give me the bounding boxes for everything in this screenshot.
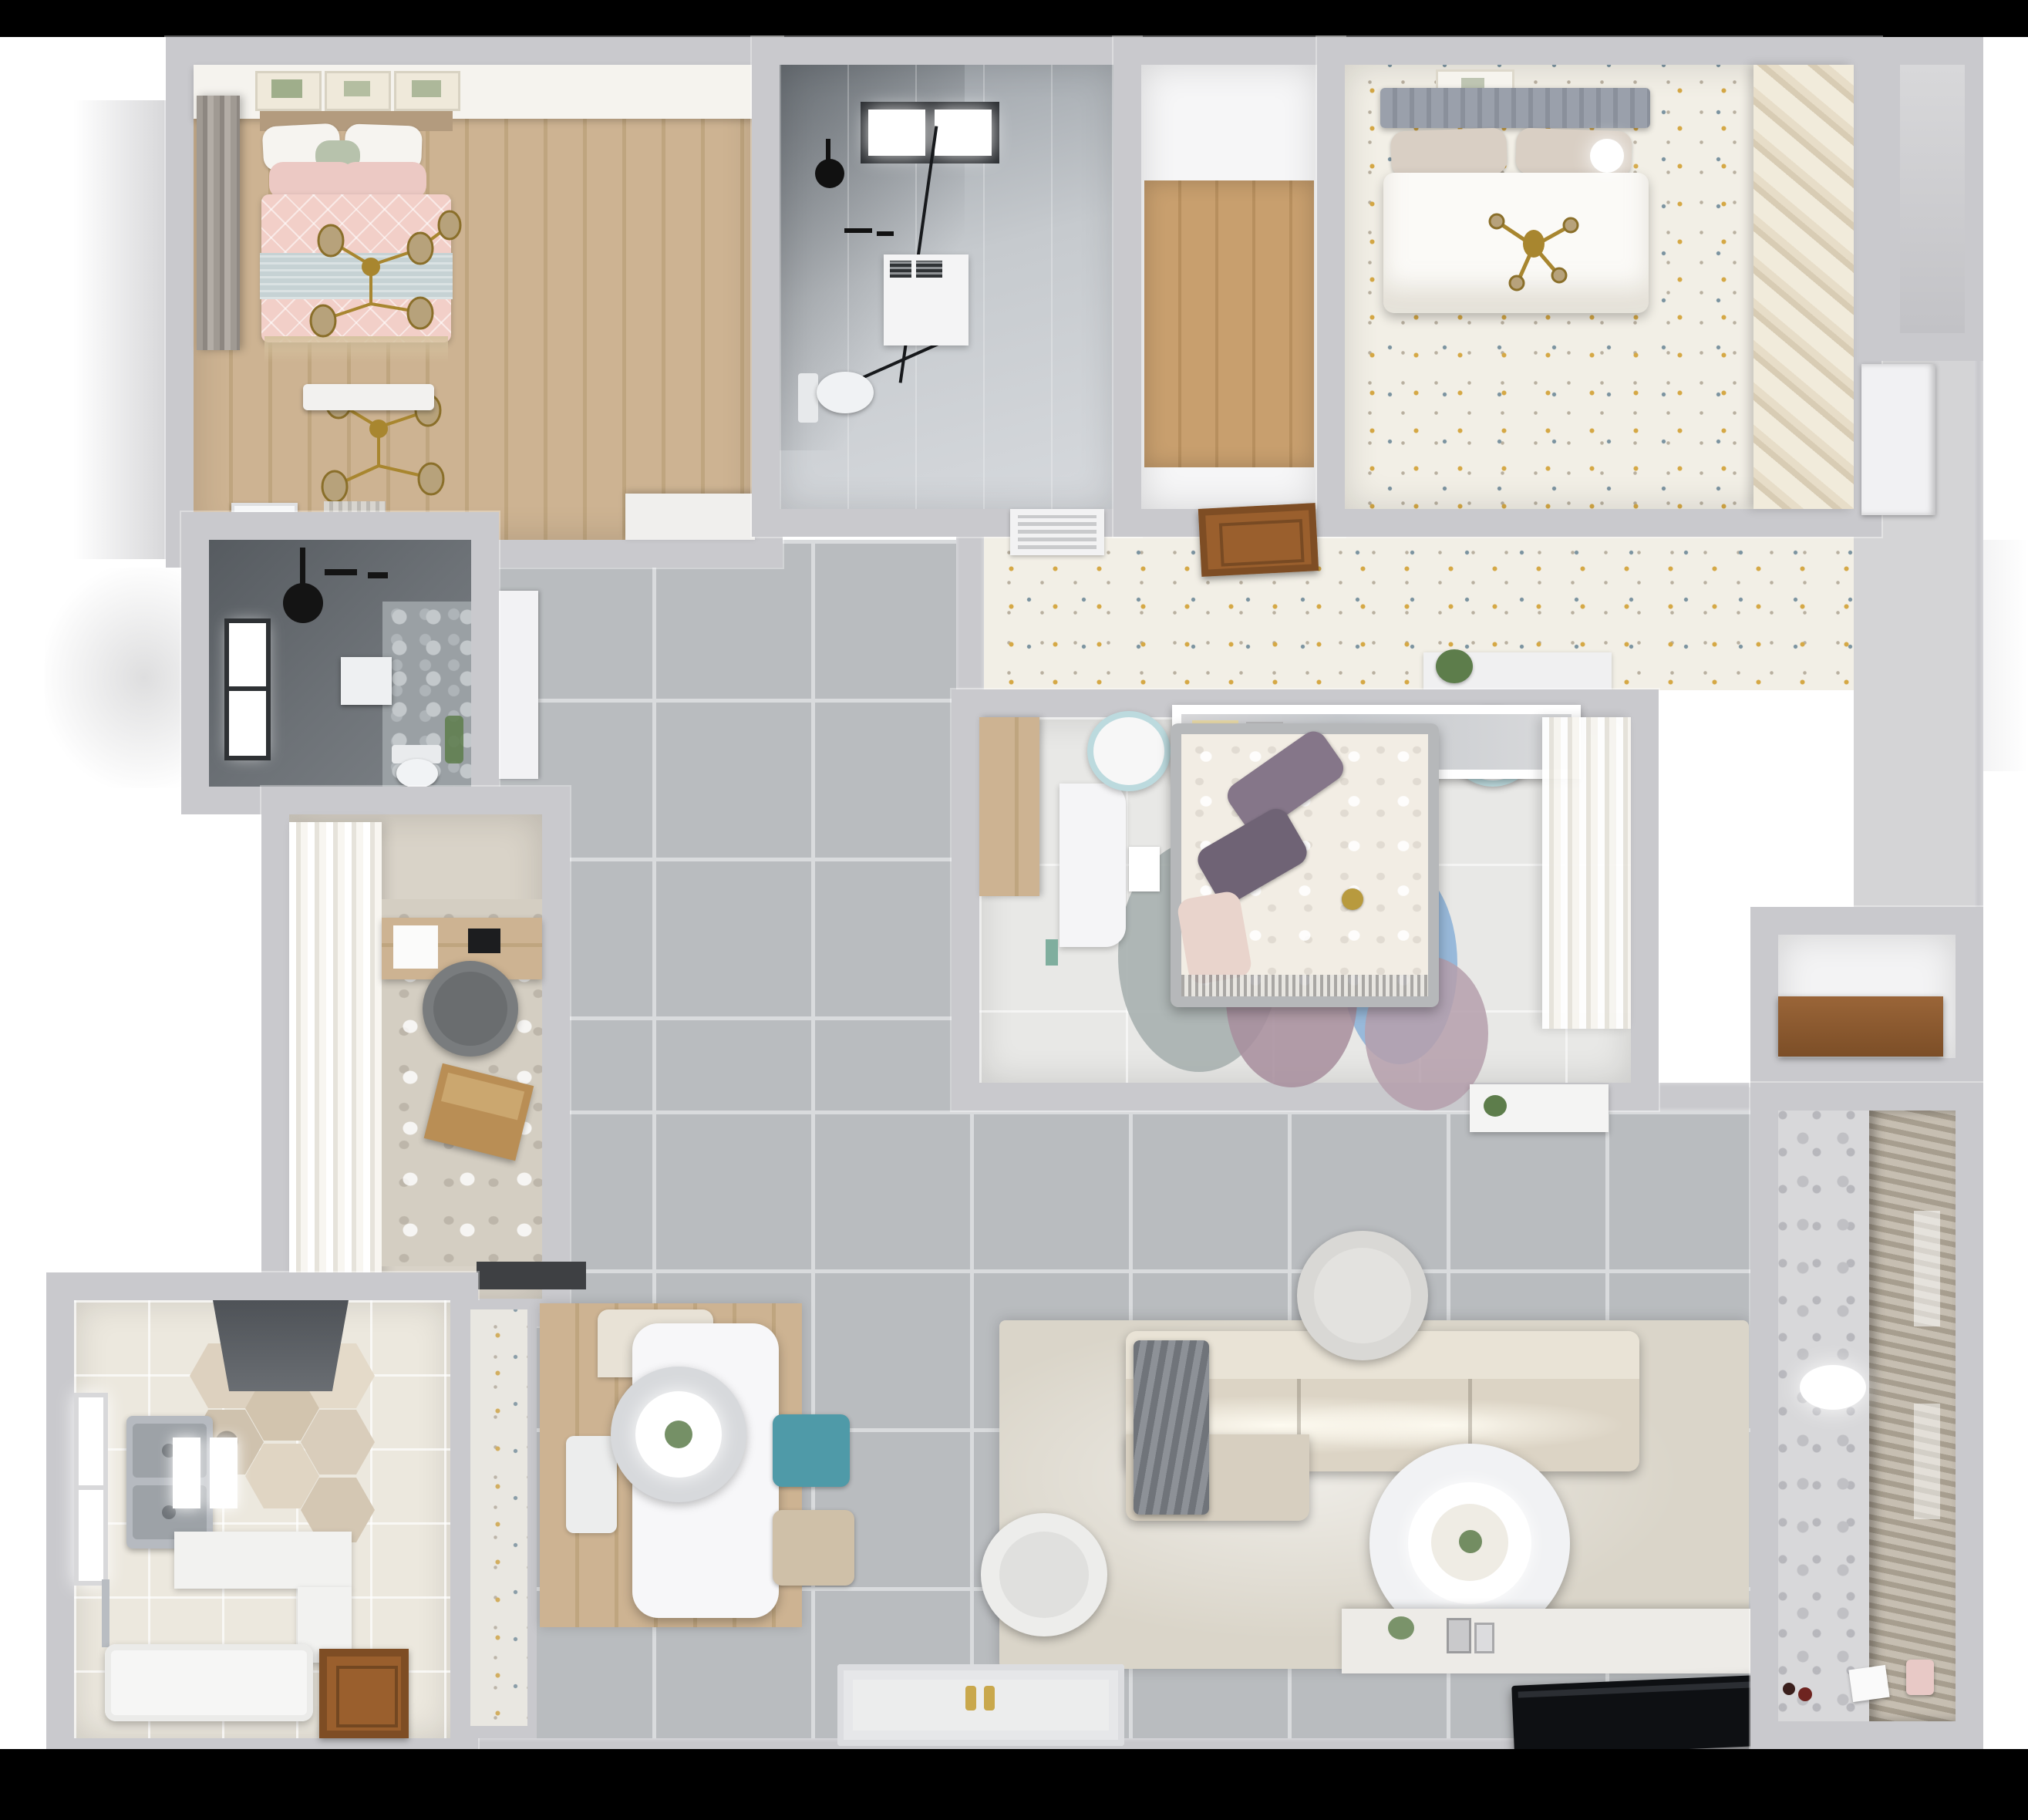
art-frame-3 [394, 71, 460, 111]
room-alcove [1750, 907, 1983, 1086]
room-master-bedroom [166, 37, 783, 568]
console-plant [1388, 1616, 1414, 1640]
desk-paper [393, 925, 438, 969]
wall-entry-right [1974, 355, 1983, 929]
purple-pillow-2 [1193, 804, 1312, 908]
kitchen-window [74, 1393, 108, 1586]
bottom-black-bar [0, 1749, 2028, 1820]
bedroom2-bed [1171, 723, 1439, 1007]
desk-chair [423, 961, 518, 1057]
entry-door [1861, 364, 1935, 515]
balcony-patterned-wall [1778, 1111, 1869, 1721]
shower-valve-2 [368, 572, 388, 578]
range-hood [213, 1300, 349, 1391]
skylight-window [861, 102, 999, 163]
dining-chair-beige [773, 1510, 854, 1586]
study-doormat [477, 1262, 586, 1289]
room-bedroom-2 [952, 689, 1659, 1111]
exterior-shadow-left-mid [45, 568, 187, 788]
door-handle-1 [965, 1686, 976, 1710]
room-ensuite-bathroom [181, 512, 499, 814]
room-study [261, 787, 570, 1326]
entry-closet-recess [1900, 65, 1965, 333]
wardrobe-wood [979, 717, 1039, 896]
divider-pattern [470, 1309, 527, 1726]
hall-wood-floor [1144, 180, 1314, 467]
gold-brooch [1342, 888, 1363, 910]
room-hall-closet [1113, 37, 1345, 537]
balcony-light [1800, 1365, 1866, 1410]
sofa-blanket [1134, 1340, 1209, 1515]
console-frame-2 [1474, 1623, 1494, 1653]
toy-1 [1783, 1683, 1795, 1695]
corridor-plant [1436, 649, 1473, 683]
floorplan-render [0, 0, 2028, 1820]
closet-slatted-shelves [1753, 65, 1854, 509]
gold-cross-pendant-icon [1476, 188, 1592, 304]
chandelier-icon [263, 196, 479, 520]
shower2-arm [826, 139, 830, 162]
bedroom2-console [1470, 1084, 1609, 1132]
counter-top [174, 1532, 352, 1589]
study-curtains [289, 822, 382, 1293]
green-bottle [1046, 939, 1058, 966]
shower-head-icon [283, 583, 323, 623]
front-door-open [837, 1664, 1124, 1746]
shower2-valve-1 [844, 228, 872, 233]
dining-chair-left [566, 1436, 617, 1533]
toilet2-tank [798, 373, 818, 423]
balcony-blinds [1869, 1111, 1956, 1721]
bathroom-window [229, 623, 266, 756]
coffee-table-plant [1459, 1530, 1482, 1553]
faucet-pole [102, 1579, 109, 1647]
shower2-valve-2 [877, 231, 894, 236]
entry-closet-nook [1881, 37, 1983, 361]
room-kitchen [46, 1272, 478, 1766]
door-handle-2 [984, 1686, 995, 1710]
pink-pillow [1176, 890, 1253, 986]
washer-cabinet [884, 254, 969, 345]
room-bedroom-3 [1317, 37, 1881, 537]
closet-curtains [1542, 717, 1631, 1029]
pillow-pink-right [342, 162, 426, 199]
bright-panel-1 [173, 1437, 200, 1508]
island-block [105, 1644, 313, 1721]
window-curtain [197, 96, 240, 350]
toilet2-bowl [817, 372, 874, 413]
desk-monitor [468, 929, 500, 953]
shower-arm [300, 548, 305, 586]
kitchen-divider-wall [450, 1300, 537, 1738]
table-plant [665, 1421, 692, 1448]
pink-bucket [1906, 1660, 1934, 1695]
bright-panel-2 [210, 1437, 237, 1508]
top-black-bar [0, 0, 2028, 37]
bed-bench [303, 384, 434, 410]
shower2-head-icon [815, 159, 844, 188]
bed3-ceiling-light [1590, 139, 1624, 173]
art-frame-1 [255, 71, 322, 111]
room-bathroom-2 [752, 37, 1141, 537]
shower-valve-1 [325, 569, 357, 575]
bedroom2-desk [1059, 784, 1126, 947]
bedroom2-door-open [1198, 503, 1319, 577]
papers [1848, 1665, 1889, 1702]
kitchen-door-open [319, 1649, 409, 1738]
art-frame-2 [325, 71, 391, 111]
bath-plant [445, 716, 463, 763]
bed3-headboard [1380, 88, 1650, 128]
console-frame-1 [1447, 1618, 1471, 1653]
desk-stool-seat [1129, 847, 1160, 891]
armchair [981, 1513, 1107, 1636]
bed2-fringe [1181, 975, 1428, 996]
dining-chair-teal [773, 1414, 850, 1487]
flush-plate [341, 657, 392, 705]
toilet-bowl [396, 759, 438, 788]
exterior-shadow-left [73, 100, 167, 559]
stool-left [1087, 711, 1171, 791]
hallway-white-door [494, 591, 538, 779]
room-balcony [1750, 1083, 1983, 1749]
dresser [625, 494, 755, 540]
pouf [1297, 1231, 1428, 1360]
ac-vent [1010, 509, 1104, 555]
alcove-wood-shelf [1778, 996, 1943, 1057]
pendant-lamp-ring [611, 1367, 746, 1502]
bed3-pillow-left [1390, 127, 1508, 177]
toy-2 [1798, 1687, 1812, 1701]
